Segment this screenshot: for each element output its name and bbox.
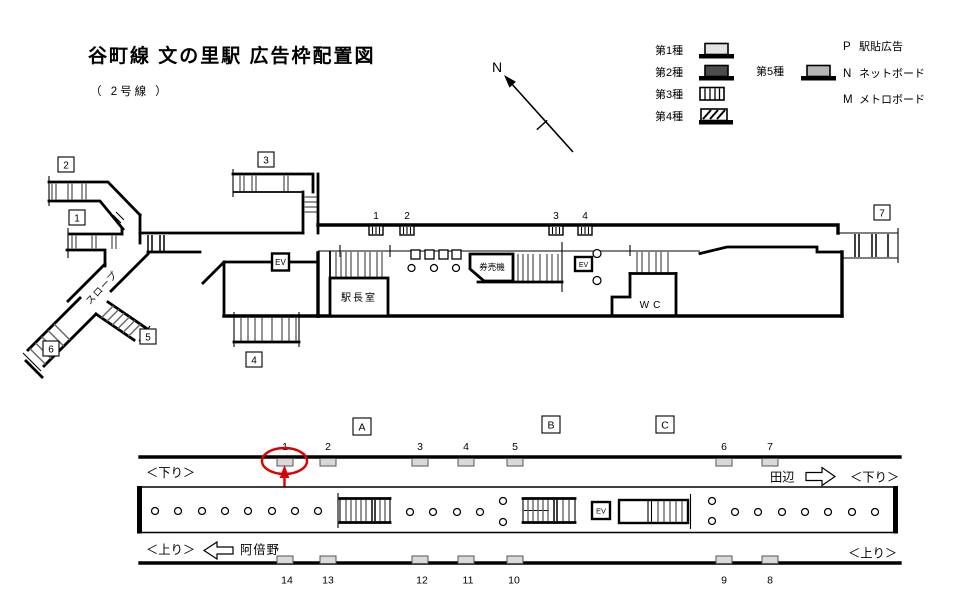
platform-map: A B C 1 2 3 4 5 6 7 bbox=[138, 416, 900, 587]
svg-text:7: 7 bbox=[767, 441, 773, 453]
section-c-label: C bbox=[661, 420, 669, 432]
svg-text:8: 8 bbox=[767, 575, 773, 587]
svg-text:13: 13 bbox=[322, 575, 334, 587]
down-line-label-right: ＜下り＞ bbox=[850, 471, 899, 485]
section-a-label: A bbox=[358, 422, 365, 434]
exit-3-label: 3 bbox=[263, 156, 269, 167]
page-subtitle: （ 2号線 ） bbox=[90, 84, 170, 98]
exit-2-label: 2 bbox=[63, 161, 69, 172]
exit-7-label: 7 bbox=[879, 209, 885, 220]
wc-area: WC bbox=[612, 252, 676, 316]
platform-elevator: EV bbox=[592, 502, 610, 519]
legend-code-m-label: メトロボード bbox=[859, 93, 925, 106]
legend-type1-label: 第1種 bbox=[655, 43, 683, 57]
north-arrow-tick bbox=[537, 120, 547, 129]
exit-1-label: 1 bbox=[74, 214, 80, 225]
exit-5-stairs: 5 bbox=[96, 302, 156, 344]
legend-type1-swatch bbox=[705, 44, 728, 55]
station-ad-layout-page: 谷町線 文の里駅 広告枠配置図 （ 2号線 ） N 第1種 第2種 第3種 第4… bbox=[0, 0, 960, 605]
legend-type4-swatch bbox=[699, 109, 733, 125]
left-arrow-icon bbox=[204, 542, 233, 559]
ticket-gates bbox=[408, 250, 461, 272]
compass: N bbox=[492, 59, 573, 152]
svg-text:11: 11 bbox=[463, 575, 474, 587]
section-labels: A B C bbox=[353, 416, 674, 435]
concourse-ad-frames: 1 2 3 4 bbox=[369, 211, 592, 235]
next-station-left-label: 阿倍野 bbox=[240, 542, 280, 557]
svg-text:12: 12 bbox=[416, 575, 428, 587]
svg-text:1: 1 bbox=[373, 211, 379, 222]
legend-type4-label: 第4種 bbox=[655, 109, 683, 123]
concourse-ad-3: 3 bbox=[549, 211, 563, 235]
fare-gate-marks bbox=[148, 235, 164, 251]
elevator-room: EV bbox=[203, 254, 318, 317]
legend-code-p-label: 駅貼広告 bbox=[859, 39, 903, 53]
legend-code-n-label: ネットボード bbox=[859, 67, 925, 80]
bottom-ad-numbers: 14 13 12 11 10 9 8 bbox=[281, 575, 773, 587]
top-ad-numbers: 1 2 3 4 5 6 7 bbox=[282, 441, 773, 453]
svg-text:14: 14 bbox=[281, 575, 293, 587]
wc-label: WC bbox=[640, 300, 665, 311]
svg-text:EV: EV bbox=[579, 262, 589, 269]
station-master-office: 駅長室 bbox=[330, 251, 388, 316]
concourse-ad-4: 4 bbox=[578, 211, 592, 235]
exit-4-stairs: 4 bbox=[234, 312, 299, 367]
svg-text:6: 6 bbox=[721, 441, 727, 453]
svg-text:3: 3 bbox=[553, 211, 559, 222]
concourse-elevator-2: EV bbox=[575, 250, 601, 285]
ticket-machine-label: 券売機 bbox=[479, 262, 505, 272]
svg-text:10: 10 bbox=[508, 575, 520, 587]
svg-text:5: 5 bbox=[512, 441, 518, 453]
up-line-label-right: ＜上り＞ bbox=[848, 547, 897, 561]
concourse-ad-2: 2 bbox=[400, 211, 414, 235]
exit-7-stairs: 7 bbox=[855, 205, 890, 257]
legend-code-m-key: M bbox=[843, 94, 853, 106]
section-b-label: B bbox=[547, 420, 554, 432]
svg-text:4: 4 bbox=[463, 441, 469, 453]
svg-text:3: 3 bbox=[417, 441, 423, 453]
ticket-machine-area: 券売機 bbox=[470, 254, 562, 282]
page-title: 谷町線 文の里駅 広告枠配置図 bbox=[88, 44, 376, 67]
north-arrow-line bbox=[511, 83, 573, 152]
exit-5-label: 5 bbox=[145, 333, 151, 344]
platform-body: EV bbox=[138, 486, 897, 534]
concourse-ad-1: 1 bbox=[369, 211, 383, 235]
legend-type3-swatch bbox=[700, 88, 724, 101]
legend-code-n-key: N bbox=[843, 68, 851, 80]
highlight-arrow-icon bbox=[280, 465, 290, 478]
next-station-right-label: 田辺 bbox=[770, 471, 795, 485]
north-label: N bbox=[492, 59, 502, 75]
legend-type5-swatch bbox=[807, 66, 830, 77]
legend-code-p-key: P bbox=[843, 41, 851, 53]
concourse-walls bbox=[318, 225, 898, 316]
concourse-corridor bbox=[113, 212, 303, 252]
svg-text:2: 2 bbox=[325, 441, 331, 453]
svg-text:2: 2 bbox=[404, 211, 410, 222]
top-ad-boxes bbox=[277, 459, 778, 467]
legend-type3-label: 第3種 bbox=[655, 87, 683, 101]
exit-2-stairs: 2 bbox=[49, 157, 140, 229]
legend-type2-label: 第2種 bbox=[655, 65, 683, 79]
concourse-map: 2 1 bbox=[23, 152, 898, 377]
exit-6-stairs: 6 bbox=[23, 298, 96, 377]
exit-3-stairs: 3 bbox=[233, 152, 318, 233]
down-line-label-left: ＜下り＞ bbox=[146, 466, 195, 480]
legend-type2-swatch bbox=[705, 66, 728, 77]
legend: 第1種 第2種 第3種 第4種 第5種 P 駅貼広告 N ネットボード M bbox=[655, 39, 925, 125]
station-master-label: 駅長室 bbox=[341, 291, 377, 304]
right-arrow-icon bbox=[806, 468, 835, 486]
header: 谷町線 文の里駅 広告枠配置図 （ 2号線 ） bbox=[88, 44, 376, 98]
legend-type5-label: 第5種 bbox=[756, 64, 784, 78]
svg-text:9: 9 bbox=[721, 575, 727, 587]
exit-4-label: 4 bbox=[251, 356, 257, 367]
svg-text:4: 4 bbox=[582, 211, 588, 222]
exit-6-label: 6 bbox=[48, 345, 54, 356]
station-diagram: 谷町線 文の里駅 広告枠配置図 （ 2号線 ） N 第1種 第2種 第3種 第4… bbox=[0, 0, 960, 605]
platform-elevator-label: EV bbox=[596, 507, 606, 516]
up-line-label-left: ＜上り＞ bbox=[146, 543, 195, 557]
platform-stairs-3 bbox=[619, 494, 691, 529]
concourse-elevator-label: EV bbox=[275, 258, 286, 267]
east-room-wall bbox=[700, 247, 842, 254]
